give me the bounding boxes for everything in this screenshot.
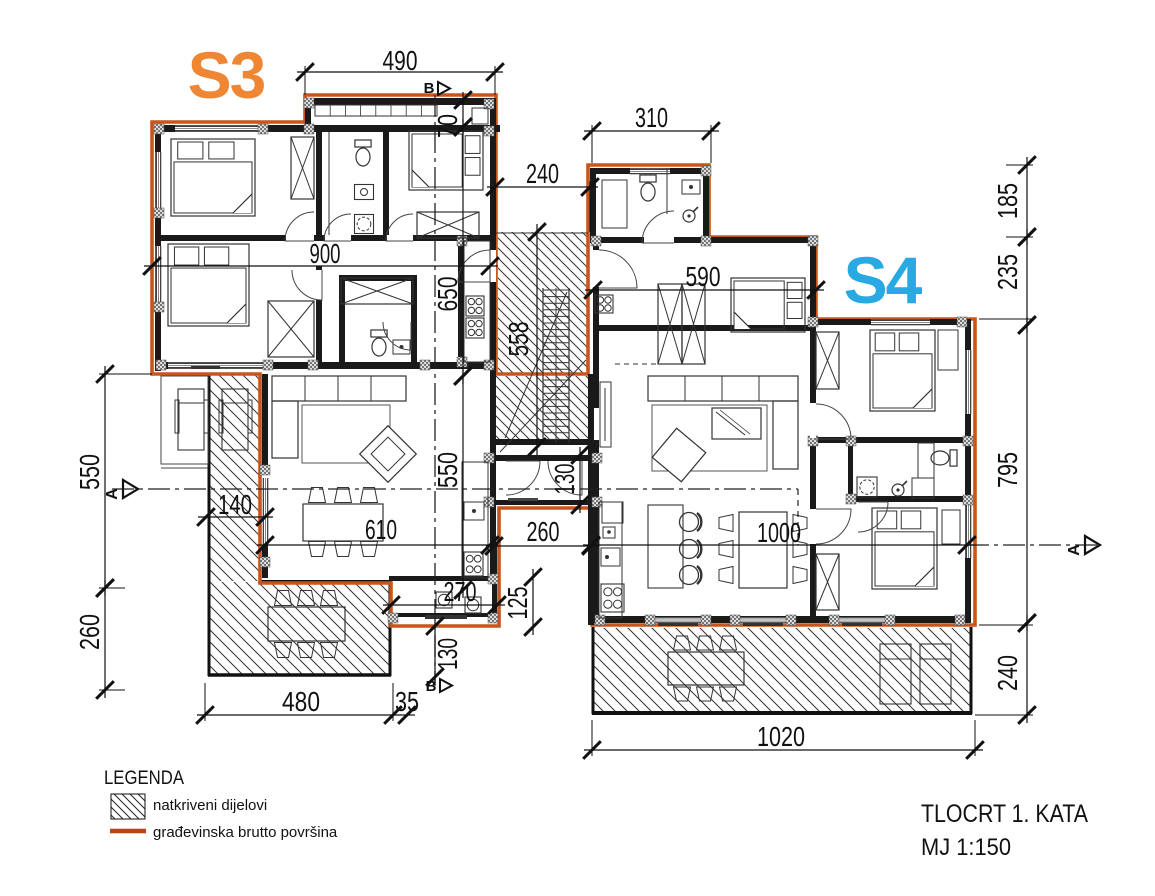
svg-text:550: 550: [432, 452, 463, 488]
svg-text:550: 550: [74, 454, 105, 490]
svg-text:558: 558: [503, 322, 534, 357]
svg-text:185: 185: [992, 183, 1023, 219]
svg-text:1000: 1000: [757, 517, 801, 548]
svg-text:130: 130: [549, 464, 580, 495]
svg-text:480: 480: [282, 686, 320, 717]
svg-text:240: 240: [526, 158, 559, 189]
svg-text:260: 260: [527, 516, 560, 547]
svg-text:A: A: [104, 488, 121, 500]
svg-text:S3: S3: [188, 38, 265, 112]
svg-text:A: A: [1066, 544, 1083, 556]
svg-text:260: 260: [74, 614, 105, 650]
svg-text:795: 795: [992, 452, 1023, 488]
svg-text:70: 70: [432, 114, 463, 138]
svg-text:140: 140: [218, 489, 252, 520]
svg-text:B: B: [424, 80, 435, 97]
svg-text:590: 590: [686, 261, 721, 292]
svg-text:130: 130: [432, 638, 463, 670]
svg-text:građevinska brutto površina: građevinska brutto površina: [153, 824, 338, 841]
svg-text:490: 490: [383, 45, 418, 76]
svg-text:1020: 1020: [757, 721, 805, 752]
svg-text:610: 610: [365, 514, 397, 545]
svg-text:235: 235: [992, 254, 1023, 290]
svg-text:240: 240: [992, 655, 1023, 691]
svg-text:650: 650: [432, 277, 463, 312]
svg-text:310: 310: [635, 102, 668, 133]
svg-text:S4: S4: [844, 243, 923, 317]
svg-text:LEGENDA: LEGENDA: [104, 768, 184, 789]
svg-text:natkriveni dijelovi: natkriveni dijelovi: [153, 797, 267, 814]
svg-text:35: 35: [395, 686, 419, 717]
svg-text:TLOCRT 1. KATA: TLOCRT 1. KATA: [921, 800, 1088, 828]
svg-text:MJ 1:150: MJ 1:150: [921, 834, 1011, 861]
svg-text:900: 900: [310, 238, 341, 269]
svg-text:125: 125: [502, 587, 533, 620]
